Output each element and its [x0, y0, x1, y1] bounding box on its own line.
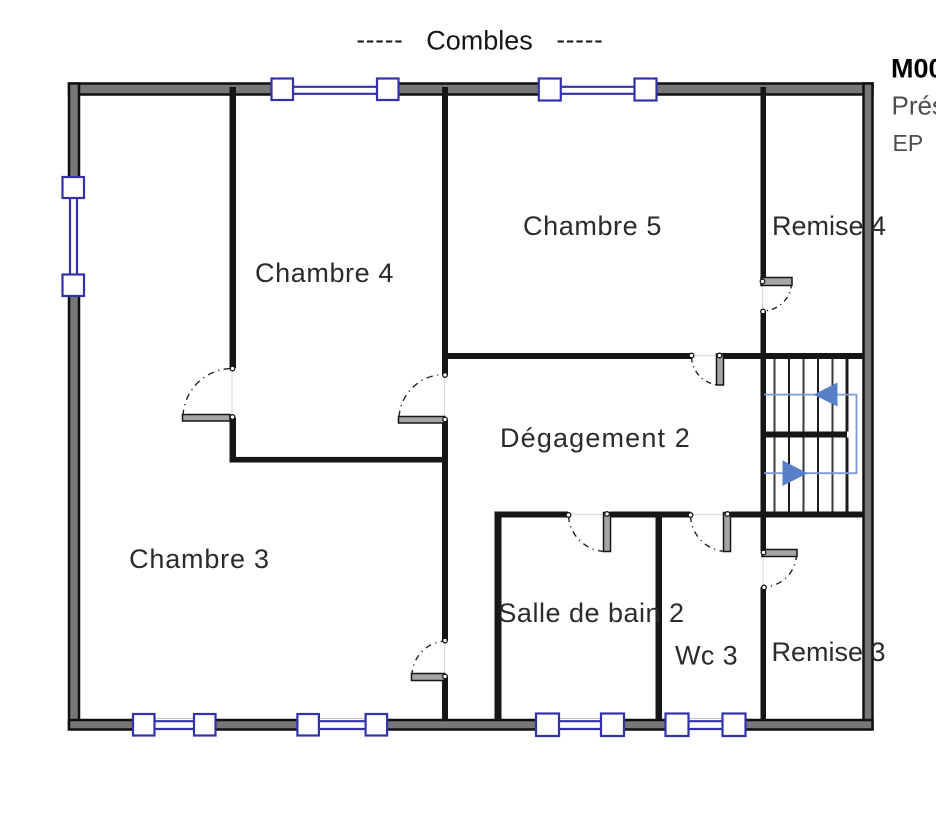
- svg-text:-----: -----: [356, 25, 403, 55]
- svg-text:Chambre 3: Chambre 3: [129, 544, 270, 574]
- svg-text:Remise 4: Remise 4: [772, 211, 886, 241]
- svg-text:Chambre 5: Chambre 5: [523, 211, 662, 241]
- svg-text:-----: -----: [556, 25, 603, 55]
- svg-text:Chambre 4: Chambre 4: [255, 258, 394, 288]
- svg-text:Dégagement 2: Dégagement 2: [500, 423, 691, 453]
- svg-text:Wc 3: Wc 3: [675, 641, 738, 671]
- svg-text:M002: M002: [891, 54, 936, 84]
- svg-text:Combles: Combles: [426, 26, 533, 56]
- svg-text:EP: EP: [893, 130, 924, 156]
- svg-text:Salle de bain 2: Salle de bain 2: [498, 598, 684, 628]
- svg-text:Présentation: Présentation: [892, 91, 936, 121]
- svg-text:Remise 3: Remise 3: [771, 637, 885, 667]
